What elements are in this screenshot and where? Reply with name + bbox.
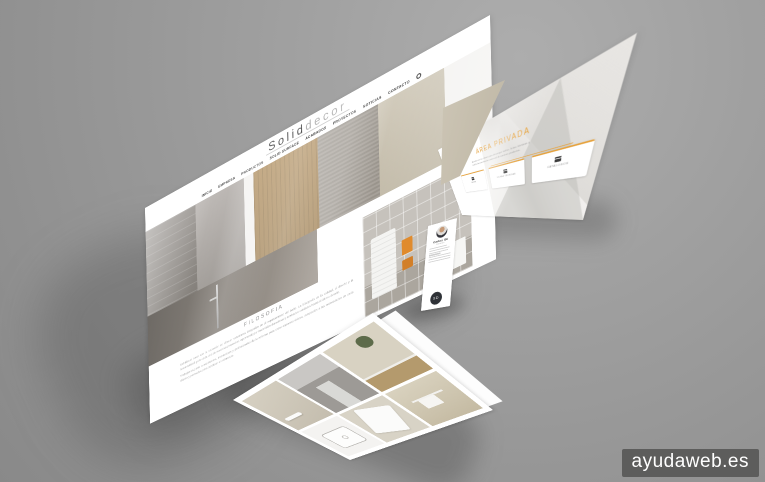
orange-towel <box>402 235 413 255</box>
company-monogram: SD <box>430 291 443 306</box>
catalog-icon <box>554 155 561 162</box>
price-list-icon <box>471 177 474 181</box>
card-tarifa[interactable]: TARIFA <box>461 169 488 192</box>
watermark-badge: ayudaweb.es <box>622 449 759 477</box>
mockup-scene: Soliddecor INICIO EMPRESA PRODUCTOS SOLI… <box>0 0 765 482</box>
radiator <box>371 227 397 300</box>
white-room-photo <box>477 33 637 220</box>
orange-towel <box>402 256 413 271</box>
tech-sheets-icon <box>503 169 507 174</box>
search-icon[interactable] <box>417 72 422 80</box>
shower-column <box>216 285 219 329</box>
